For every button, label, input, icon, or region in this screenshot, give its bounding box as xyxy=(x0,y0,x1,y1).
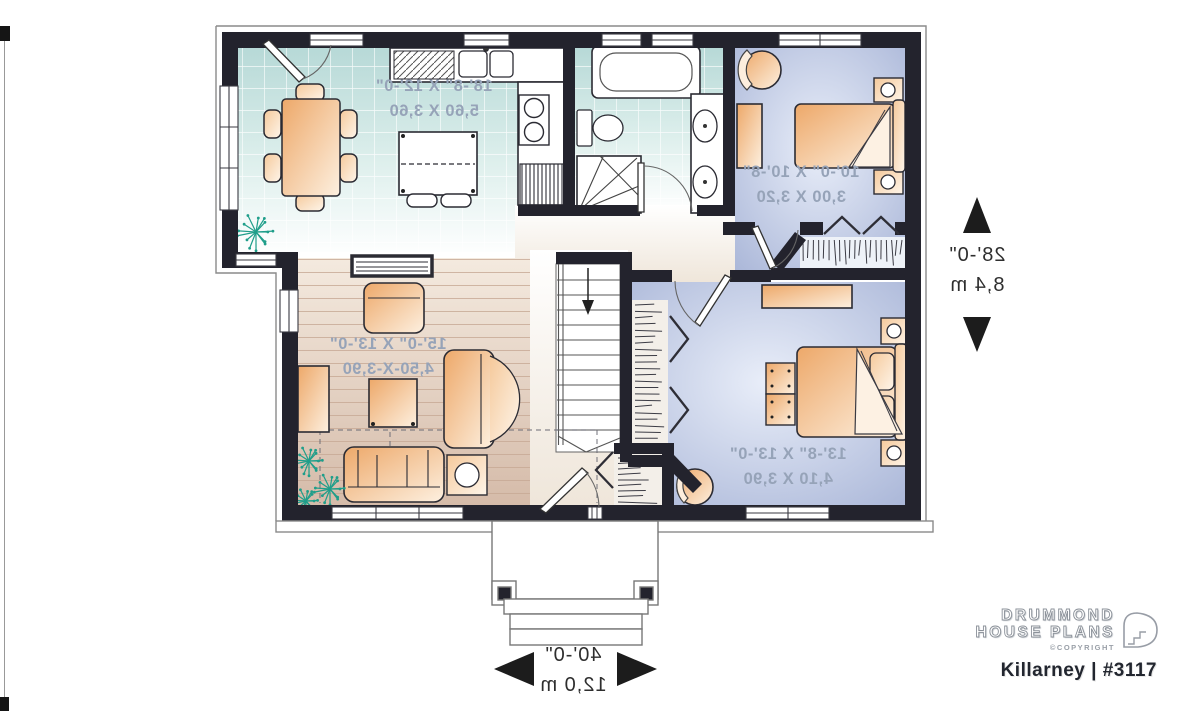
arrow-right xyxy=(617,652,657,686)
dresser xyxy=(762,285,852,308)
porch xyxy=(492,521,658,645)
edge-marks xyxy=(0,26,10,711)
arrow-left xyxy=(494,652,534,686)
chest-drawers xyxy=(766,394,795,425)
lamp xyxy=(455,463,479,487)
brand-copyright: ©COPYRIGHT xyxy=(955,643,1115,652)
porch-post xyxy=(640,587,653,600)
tv-unit xyxy=(352,256,432,276)
plan-title: Killarney | #3117 xyxy=(955,660,1157,682)
sink-bowl xyxy=(490,51,513,77)
porch-post xyxy=(498,587,511,600)
dining-chair xyxy=(340,154,357,182)
porch-step xyxy=(504,599,648,614)
dining-chair xyxy=(264,110,281,138)
stairs xyxy=(556,264,620,452)
dining-table xyxy=(282,99,340,196)
sink-bowl xyxy=(459,51,487,77)
porch-step xyxy=(510,629,642,645)
arrow-down xyxy=(963,317,991,352)
toilet xyxy=(577,110,592,146)
closet-bedroom-upper xyxy=(800,237,905,268)
pantry xyxy=(520,164,564,205)
porch-slab xyxy=(492,521,658,599)
coffee-table xyxy=(369,379,417,427)
tv-console xyxy=(298,366,329,432)
porch-step xyxy=(510,614,642,629)
loveseat xyxy=(444,350,494,448)
floor-plan-image: 18'-8" X 12'-0" 5,60 X 3,60 15'-0" X 13'… xyxy=(0,0,1200,711)
brand-name-line2: HOUSE PLANS xyxy=(955,624,1115,641)
brand-name-line1: DRUMMOND xyxy=(955,607,1115,624)
bathroom-door xyxy=(638,163,644,212)
island-stool xyxy=(441,194,471,207)
floor-plan-drawing xyxy=(0,0,1200,711)
headboard xyxy=(893,100,905,172)
chest-drawers xyxy=(766,363,795,394)
island-stool xyxy=(407,194,437,207)
dining-chair xyxy=(264,154,281,182)
drummond-logo-icon xyxy=(1124,613,1157,647)
dresser xyxy=(737,104,762,168)
dining-chair xyxy=(340,110,357,138)
armchair xyxy=(364,283,424,333)
door-sill xyxy=(588,507,602,519)
dishwasher xyxy=(394,51,454,79)
sofa xyxy=(344,447,444,502)
drummond-logo: DRUMMOND HOUSE PLANS ©COPYRIGHT xyxy=(955,607,1115,652)
arrow-up xyxy=(963,197,991,233)
